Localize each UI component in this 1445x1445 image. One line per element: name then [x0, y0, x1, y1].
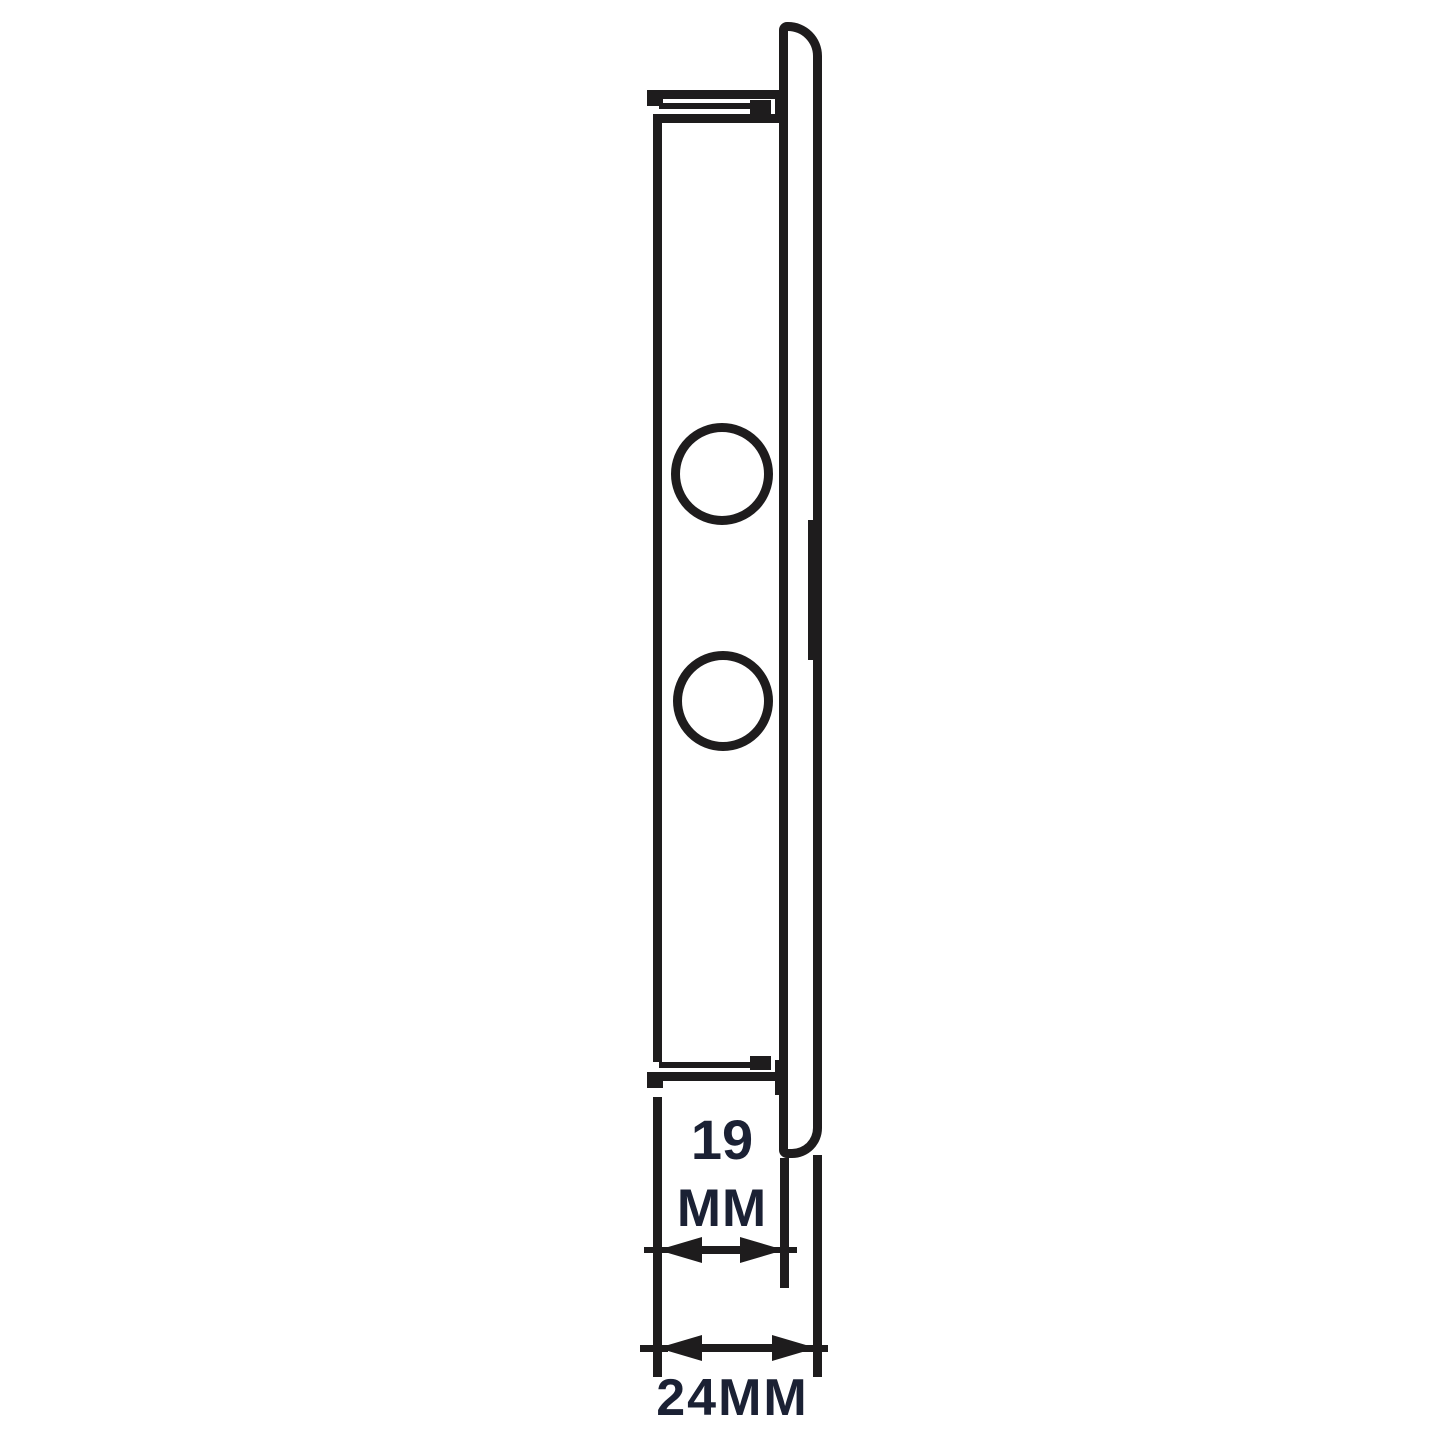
top-flange-outer-bar: [650, 90, 780, 99]
dim-19mm-label-unit: MM: [652, 1182, 792, 1235]
box-bottom-wall: [653, 1072, 789, 1081]
dim-19mm-label-value: 19: [652, 1112, 792, 1168]
box-left-wall: [653, 115, 662, 1062]
dim-24mm-tick-right: [800, 1345, 828, 1352]
dim-24mm-tick-left: [640, 1345, 668, 1352]
top-flange-inner-line: [659, 103, 751, 109]
bottom-flange-clip-notch: [750, 1056, 771, 1070]
box-top-wall: [653, 114, 789, 123]
dimension-diagram-canvas: 19 MM 24MM: [0, 0, 1445, 1445]
bottom-flange-left-cap: [647, 1072, 663, 1088]
dim-24mm-label: 24MM: [630, 1372, 835, 1424]
bottom-flange-inner-line: [659, 1062, 751, 1068]
screw-hole-upper: [671, 423, 773, 525]
dim-19mm-tick-left: [644, 1247, 668, 1253]
front-plate-edge-thick-segment: [808, 520, 822, 660]
dim-19mm-tick-right: [772, 1247, 797, 1253]
top-flange-clip-notch: [750, 100, 771, 114]
screw-hole-lower: [673, 651, 773, 751]
